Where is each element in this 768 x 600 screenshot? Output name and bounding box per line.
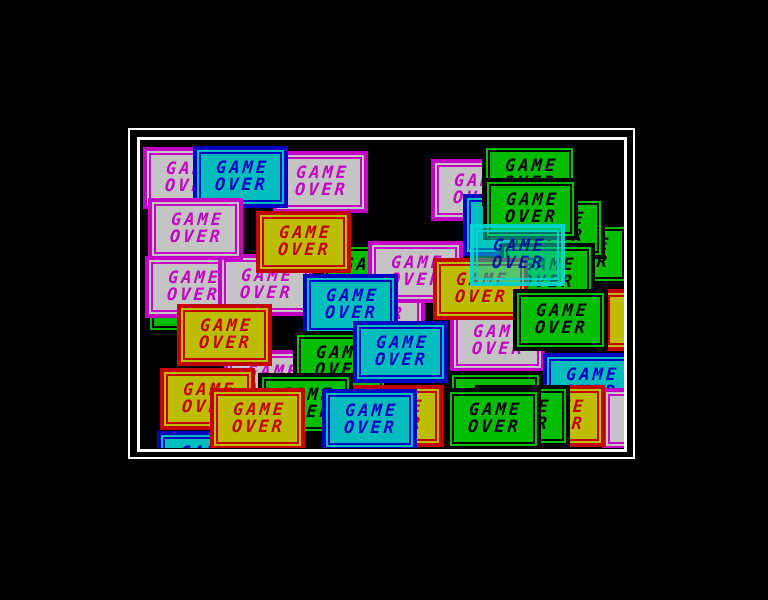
game-over-text-line2: OVER (211, 177, 268, 194)
game-over-text-line2: OVER (531, 320, 588, 337)
game-over-box-green: GAMEOVER (513, 289, 608, 351)
game-over-text-line2: OVER (620, 419, 624, 436)
game-over-text-line2: OVER (274, 242, 331, 259)
game-over-text-line2: OVER (195, 335, 252, 352)
game-over-text-line2: OVER (228, 419, 285, 436)
game-over-box-gray: GAMEOVER (602, 388, 624, 448)
game-over-box-green: GAMEOVER (446, 388, 541, 448)
game-over-text-line2: OVER (620, 320, 624, 337)
game-over-text-line1: GAME (622, 402, 624, 419)
game-over-text-line2: OVER (464, 419, 521, 436)
game-over-text-line2: OVER (371, 352, 428, 369)
game-over-text-line2: OVER (236, 285, 293, 302)
game-over-box-cyan: GAMEOVER (353, 321, 448, 383)
game-over-text-line2: OVER (163, 287, 220, 304)
game-over-box-yellow: GAMEOVER (210, 388, 305, 448)
game-over-collage: GAMEOVERGAMEOVERGAMEOVERGAMEOVERGAMEOVER… (141, 141, 624, 448)
game-over-text-line2: OVER (451, 289, 508, 306)
game-over-box-yellow: GAMEOVER (177, 304, 272, 366)
game-over-text-line1: GAME (622, 303, 624, 320)
game-screen: GAMEOVERGAMEOVERGAMEOVERGAMEOVERGAMEOVER… (0, 0, 768, 600)
game-over-text-line2: OVER (166, 229, 223, 246)
game-over-text-line2: OVER (291, 182, 348, 199)
game-over-box-overlay: GAMEOVER (470, 224, 565, 286)
game-over-text-line2: OVER (340, 420, 397, 437)
game-over-box-yellow: GAMEOVER (256, 211, 351, 273)
game-over-text-line2: OVER (488, 255, 545, 272)
game-over-box-gray: GAMEOVER (148, 198, 243, 260)
game-over-text-line2: OVER (321, 305, 378, 322)
game-over-box-cyan: GAMEOVER (322, 389, 417, 448)
